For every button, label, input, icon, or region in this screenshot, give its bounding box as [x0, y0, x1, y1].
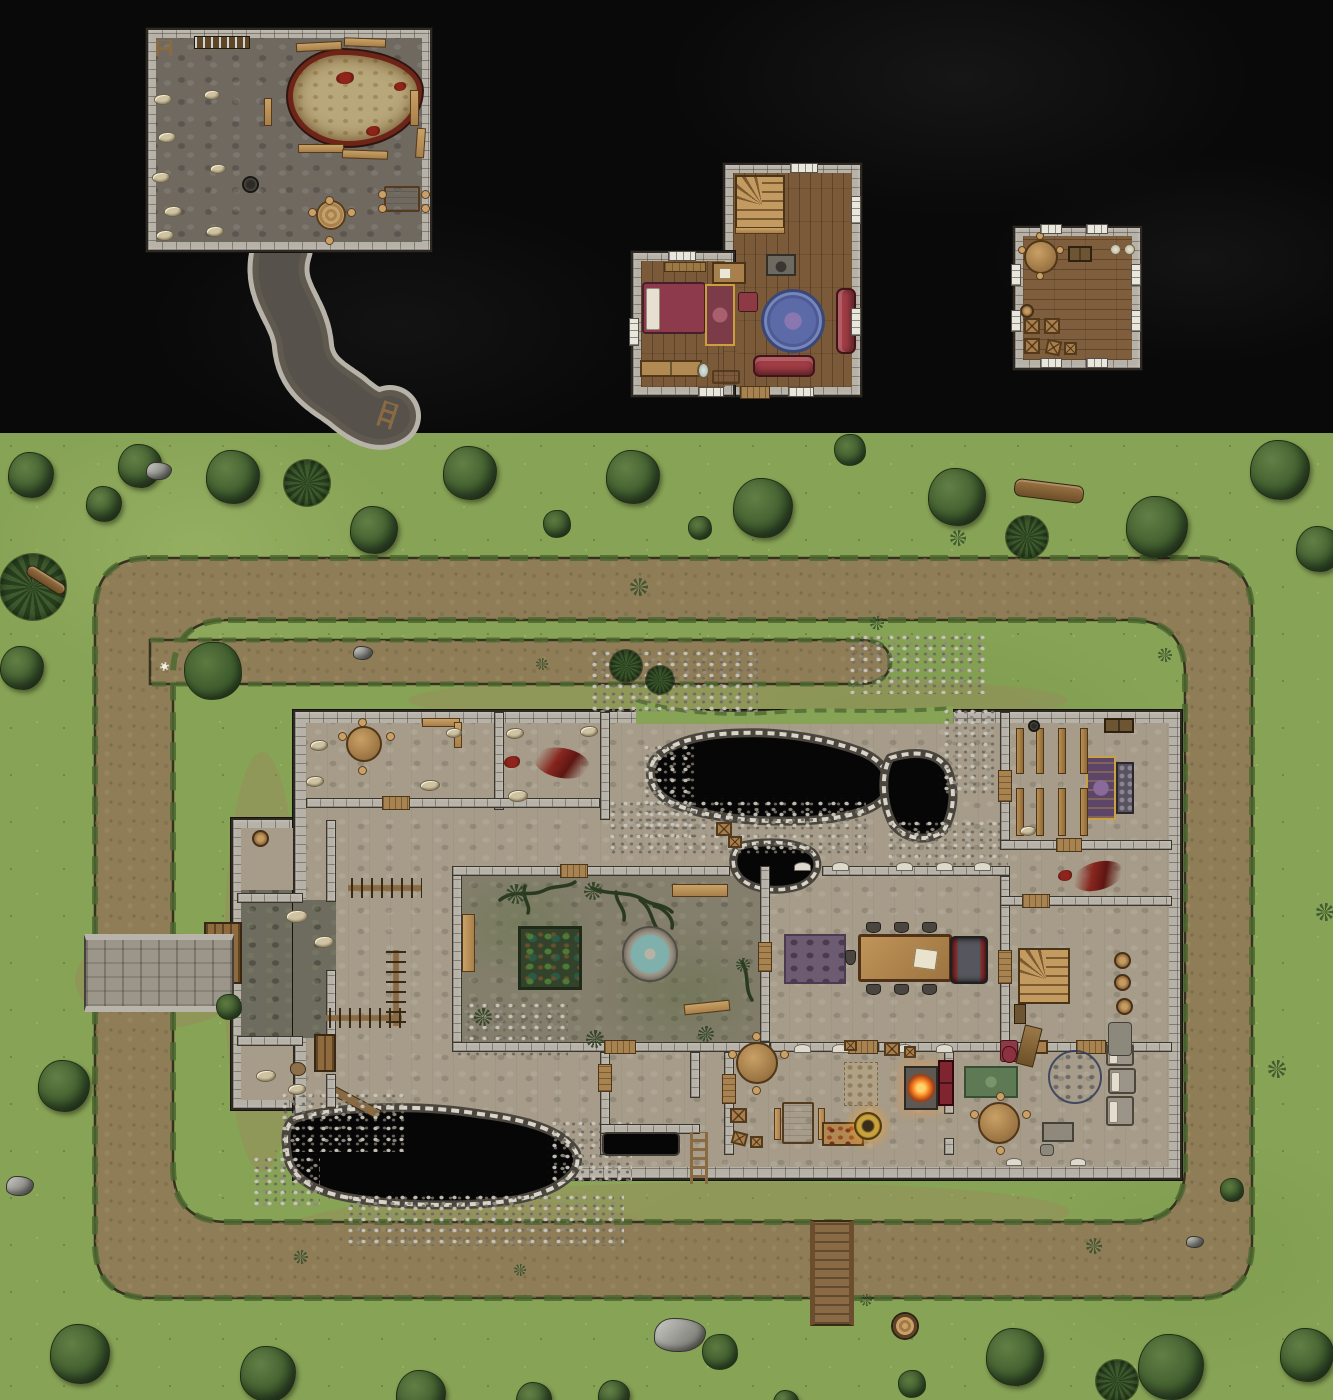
door-threshold — [604, 1040, 636, 1054]
tree — [1280, 1328, 1333, 1382]
weed-tuft — [474, 1008, 492, 1026]
window — [936, 1044, 953, 1053]
bone-pile — [314, 936, 334, 948]
window — [851, 196, 861, 224]
wall — [1000, 840, 1058, 850]
stool — [1036, 272, 1044, 280]
garden-plot — [518, 926, 582, 990]
grass-tuft — [1158, 648, 1172, 662]
tree — [606, 450, 660, 504]
bench — [342, 149, 388, 160]
tree — [8, 452, 54, 498]
bench — [298, 144, 344, 153]
door-threshold — [998, 770, 1012, 802]
crate — [750, 1136, 763, 1148]
flower — [160, 662, 169, 671]
bone-pile — [310, 740, 328, 751]
stool — [378, 204, 387, 213]
tree — [1250, 440, 1310, 500]
grass-tuft — [1086, 1238, 1102, 1254]
attic-table — [1024, 240, 1058, 274]
door-threshold — [382, 796, 410, 810]
window — [668, 251, 696, 261]
blood-smear — [1069, 856, 1126, 897]
crate — [904, 1046, 916, 1058]
hall-chair — [894, 922, 909, 933]
barrel — [252, 830, 269, 847]
crate — [1024, 318, 1040, 334]
window — [1011, 264, 1021, 286]
armchair — [738, 292, 758, 312]
spiked-barricade — [348, 878, 422, 898]
tree — [38, 1060, 90, 1112]
plate — [1110, 244, 1121, 255]
blood-pool — [1058, 870, 1072, 881]
bush — [834, 434, 866, 466]
side-table — [712, 370, 740, 384]
bench — [344, 37, 386, 47]
bone-pile — [204, 90, 220, 100]
stair-flight — [1018, 948, 1070, 1004]
bush — [543, 510, 571, 538]
wall — [944, 1138, 954, 1155]
barrel — [1114, 952, 1131, 969]
storeroom-table — [346, 726, 382, 762]
candle-brazier — [1028, 720, 1040, 732]
stool — [780, 1050, 789, 1059]
crate — [728, 836, 742, 848]
window — [1131, 264, 1141, 286]
spiky-bush — [646, 666, 674, 694]
grass-tuft — [860, 1294, 872, 1306]
bone-pile — [158, 132, 176, 143]
grass-tuft — [294, 1250, 308, 1264]
wooden-bridge — [810, 1220, 854, 1326]
window — [832, 862, 849, 871]
hall-chair — [894, 984, 909, 995]
pew — [1016, 728, 1024, 774]
bone-pile — [506, 728, 524, 739]
bush — [1220, 1178, 1244, 1202]
rug-altar — [1086, 756, 1116, 820]
grass-tuft — [1268, 1060, 1286, 1078]
blood-pool — [394, 82, 406, 91]
rug-barracks-green — [964, 1066, 1018, 1098]
wall — [326, 820, 336, 902]
weed-tuft — [586, 1030, 604, 1048]
hearth — [766, 254, 796, 276]
bone-pile — [164, 206, 182, 217]
hall-chair — [922, 984, 937, 995]
bone-pile — [210, 164, 226, 174]
weed-tuft — [698, 1026, 714, 1042]
rug-barracks-round — [1048, 1050, 1102, 1104]
exit-ladder — [690, 1132, 708, 1184]
crate — [730, 1108, 747, 1123]
bone-pile — [1020, 826, 1036, 836]
wall — [1000, 896, 1024, 906]
rubble-field — [278, 1090, 408, 1152]
tree — [240, 1346, 296, 1400]
barracks-table — [978, 1102, 1020, 1144]
bench-broken — [684, 1000, 731, 1016]
tree — [516, 1382, 552, 1400]
rock — [1186, 1236, 1204, 1248]
bench — [410, 90, 419, 126]
stool — [421, 204, 430, 213]
weed-tuft — [506, 884, 526, 904]
window — [1131, 310, 1141, 332]
fallen-log — [1013, 478, 1085, 504]
tunnel-ladder — [376, 400, 398, 429]
bone-pile — [156, 230, 174, 241]
lectern — [1014, 1004, 1026, 1024]
wall — [600, 712, 610, 820]
window — [1040, 224, 1062, 234]
banister — [735, 227, 785, 234]
hall-table — [858, 934, 952, 982]
bench — [415, 128, 426, 159]
chapel-chest — [1104, 718, 1134, 733]
rubble-field — [250, 1154, 320, 1206]
tree — [773, 1390, 799, 1400]
crate — [716, 822, 732, 836]
stool — [358, 766, 367, 775]
door-threshold — [740, 386, 770, 399]
brazier — [242, 176, 259, 193]
pew — [1080, 788, 1088, 836]
cellar-alcove — [602, 1132, 680, 1156]
weapon-rack — [194, 36, 250, 49]
window — [698, 387, 724, 397]
door-threshold — [998, 950, 1012, 984]
rock — [146, 462, 172, 480]
tree — [1126, 496, 1188, 558]
rubble-field — [846, 632, 986, 694]
bench — [672, 884, 728, 897]
rug-bedroom — [705, 284, 735, 346]
rug-kitchen-worn — [844, 1062, 878, 1106]
couch — [753, 355, 815, 377]
fountain — [622, 926, 678, 982]
chest — [1068, 246, 1092, 262]
stool — [728, 1050, 737, 1059]
wall — [1000, 876, 1010, 954]
window — [790, 163, 818, 173]
fireplace — [904, 1066, 938, 1110]
writing-desk — [1042, 1122, 1074, 1142]
wall — [1080, 840, 1172, 850]
grass-tuft — [514, 1264, 526, 1276]
tree — [0, 646, 44, 690]
pew — [1058, 788, 1066, 836]
spiky-bush — [1096, 1360, 1138, 1400]
bush — [898, 1370, 926, 1398]
blood-pool — [336, 72, 354, 84]
bench — [264, 98, 272, 126]
altar-screen — [1116, 762, 1134, 814]
kitchen-table — [782, 1102, 814, 1144]
stone-causeway — [84, 934, 234, 1012]
tree — [986, 1328, 1044, 1386]
fight-pit — [288, 50, 422, 146]
rock — [654, 1318, 706, 1352]
stool — [752, 1032, 761, 1041]
wall — [452, 866, 570, 876]
door-threshold — [1022, 894, 1050, 908]
grass-tuft — [870, 616, 884, 630]
inner-gate — [314, 1034, 336, 1072]
tree — [1296, 526, 1333, 572]
bed — [1108, 1068, 1136, 1094]
barrel — [1116, 998, 1133, 1015]
bush — [688, 516, 712, 540]
window — [794, 862, 811, 871]
bench — [774, 1108, 781, 1140]
bone-pile — [306, 776, 324, 787]
window — [851, 308, 861, 336]
battle-map — [0, 0, 1333, 1400]
hall-chair — [866, 984, 881, 995]
barrel — [1020, 304, 1034, 318]
pew — [1036, 788, 1044, 836]
wall — [1000, 712, 1010, 774]
door-threshold — [1056, 838, 1082, 852]
stool — [347, 208, 356, 217]
tree — [396, 1370, 446, 1400]
tree — [598, 1380, 630, 1400]
wall — [306, 798, 394, 808]
sprite-layer — [0, 0, 1333, 1400]
door-threshold — [598, 1064, 612, 1092]
grass-tuft — [1316, 903, 1333, 921]
wall — [408, 798, 600, 808]
blood-smear — [532, 743, 592, 782]
stool — [996, 1092, 1005, 1101]
door-threshold — [722, 1074, 736, 1104]
dresser — [640, 360, 702, 377]
stool — [421, 190, 430, 199]
spiked-barricade — [326, 1008, 402, 1028]
wall — [760, 970, 770, 1042]
barrel — [1114, 974, 1131, 991]
stool — [996, 1146, 1005, 1155]
wall — [237, 893, 303, 903]
tree — [443, 446, 497, 500]
bone-pile — [580, 726, 598, 737]
window — [896, 862, 913, 871]
weed-tuft — [584, 882, 602, 900]
weed-tuft — [736, 958, 750, 972]
rug-great-hall — [784, 934, 846, 984]
bone-pile — [206, 226, 224, 237]
stump — [893, 1314, 917, 1338]
window — [1040, 358, 1062, 368]
bush — [216, 994, 242, 1020]
grass-tuft — [630, 578, 648, 596]
bush — [184, 642, 242, 700]
sack — [290, 1062, 306, 1076]
window — [1011, 310, 1021, 332]
shelf — [664, 262, 706, 272]
rubble-field — [344, 1192, 624, 1246]
stool — [338, 732, 347, 741]
spiky-bush — [610, 650, 642, 682]
crate — [844, 1040, 857, 1051]
window — [794, 1044, 811, 1053]
wall — [494, 712, 504, 810]
armchair — [1108, 1022, 1132, 1056]
bone-pile — [420, 780, 440, 791]
window — [1086, 224, 1108, 234]
bench — [462, 914, 475, 972]
rubble-field — [640, 742, 696, 838]
hatch-ladder — [156, 40, 172, 56]
crate — [1064, 342, 1077, 355]
rock — [353, 646, 373, 660]
armored-throne — [950, 936, 988, 984]
window — [936, 862, 953, 871]
tree — [206, 450, 260, 504]
pew — [1080, 728, 1088, 774]
pew — [1058, 728, 1066, 774]
crate — [884, 1042, 900, 1056]
rock — [6, 1176, 34, 1196]
spiky-bush — [284, 460, 330, 506]
bed — [642, 282, 706, 334]
red-sack — [1002, 1046, 1017, 1063]
tree — [86, 486, 122, 522]
tree — [350, 506, 398, 554]
blood-pool — [504, 756, 520, 768]
rug-parlor-round — [761, 289, 825, 353]
crate — [1044, 318, 1060, 334]
bed — [1106, 1096, 1134, 1126]
grass-tuft — [536, 658, 548, 670]
gold-brazier — [854, 1112, 882, 1140]
window — [1006, 1158, 1022, 1166]
wall — [1048, 896, 1172, 906]
stool — [325, 196, 334, 205]
crate — [1045, 339, 1063, 357]
tree — [50, 1324, 110, 1384]
window — [629, 318, 639, 346]
door-threshold — [758, 942, 772, 972]
bone-pile — [154, 94, 172, 105]
stool — [1022, 1110, 1031, 1119]
grass-tuft — [950, 530, 966, 546]
chair — [1040, 1144, 1054, 1156]
stool — [1018, 246, 1026, 254]
red-cabinet — [938, 1060, 954, 1106]
tree — [733, 478, 793, 538]
tree — [1138, 1334, 1204, 1400]
stool — [325, 236, 334, 245]
stair-flight — [735, 175, 785, 229]
spiky-bush — [1006, 516, 1048, 558]
rubble-field — [940, 706, 996, 794]
hall-chair — [922, 922, 937, 933]
window — [1070, 1158, 1086, 1166]
mirror — [697, 362, 710, 379]
wall — [760, 866, 770, 944]
stool — [358, 718, 367, 727]
bush — [702, 1334, 738, 1370]
desk — [712, 262, 746, 284]
window — [1086, 358, 1108, 368]
wall — [452, 866, 462, 1052]
wall — [690, 1052, 700, 1098]
hall-chair — [845, 950, 856, 965]
wall — [326, 970, 336, 1040]
pew — [1036, 728, 1044, 774]
stool — [1056, 246, 1064, 254]
stool — [970, 1110, 979, 1119]
stool — [752, 1086, 761, 1095]
tree — [928, 468, 986, 526]
wall — [237, 1036, 303, 1046]
stool — [386, 732, 395, 741]
window — [974, 862, 991, 871]
wall — [326, 1074, 336, 1108]
window — [788, 387, 814, 397]
crate — [1024, 338, 1040, 354]
wall — [586, 866, 730, 876]
stool — [308, 208, 317, 217]
kitchen-round-table — [736, 1042, 778, 1084]
plate — [1124, 244, 1135, 255]
cave-table — [384, 186, 420, 212]
hall-chair — [866, 922, 881, 933]
stool — [378, 190, 387, 199]
wall — [1000, 982, 1010, 1042]
bone-pile — [152, 172, 170, 183]
door-threshold — [560, 864, 588, 878]
wall — [452, 1042, 608, 1052]
